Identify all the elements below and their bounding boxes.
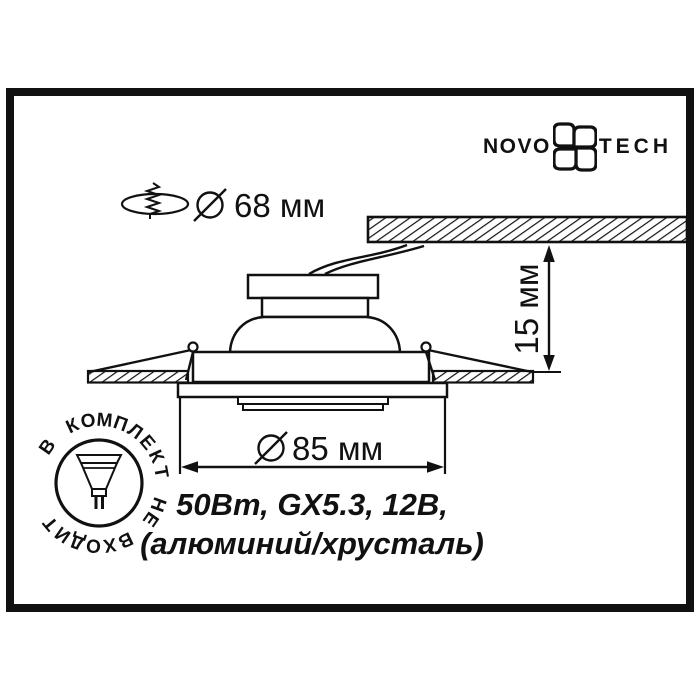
lamp-specs: 50Вт, GX5.3, 12В, (алюминий/хрусталь)	[92, 485, 532, 563]
supply-wire	[309, 245, 424, 274]
badge-letter: О	[79, 410, 97, 433]
lamp-specs-line1: 50Вт, GX5.3, 12В,	[92, 485, 532, 524]
glass-layer-2	[243, 404, 383, 410]
ceiling-strip-right	[433, 371, 533, 383]
trim-diameter-value: 85 мм	[292, 430, 383, 467]
trim-ring	[178, 383, 447, 397]
spec-sheet: NOVO TECH 68 мм	[0, 0, 700, 700]
recess-height-value: 15 мм	[508, 263, 545, 354]
diameter-sign-icon	[255, 432, 287, 464]
technical-drawing: 68 мм 15 мм	[0, 0, 700, 700]
terminal-box	[248, 275, 378, 298]
cutout-diameter-value: 68 мм	[234, 187, 325, 224]
badge-letter: В	[35, 436, 60, 459]
height-dimension: 15 мм	[508, 245, 561, 372]
lamp-holder-neck	[262, 298, 368, 317]
lamp-specs-line2: (алюминий/хрусталь)	[92, 524, 532, 563]
glass-layer-1	[238, 397, 388, 404]
screw-through-hole-icon	[122, 183, 188, 219]
reflector-dome	[230, 317, 400, 352]
ceiling-strip-left	[88, 371, 188, 383]
mounting-collar	[193, 352, 429, 382]
diameter-sign-icon	[194, 189, 226, 221]
cutout-dimension-label: 68 мм	[194, 187, 325, 224]
fixture-body	[88, 275, 533, 410]
badge-letter: Т	[149, 465, 172, 480]
ceiling-section-band	[368, 217, 687, 242]
